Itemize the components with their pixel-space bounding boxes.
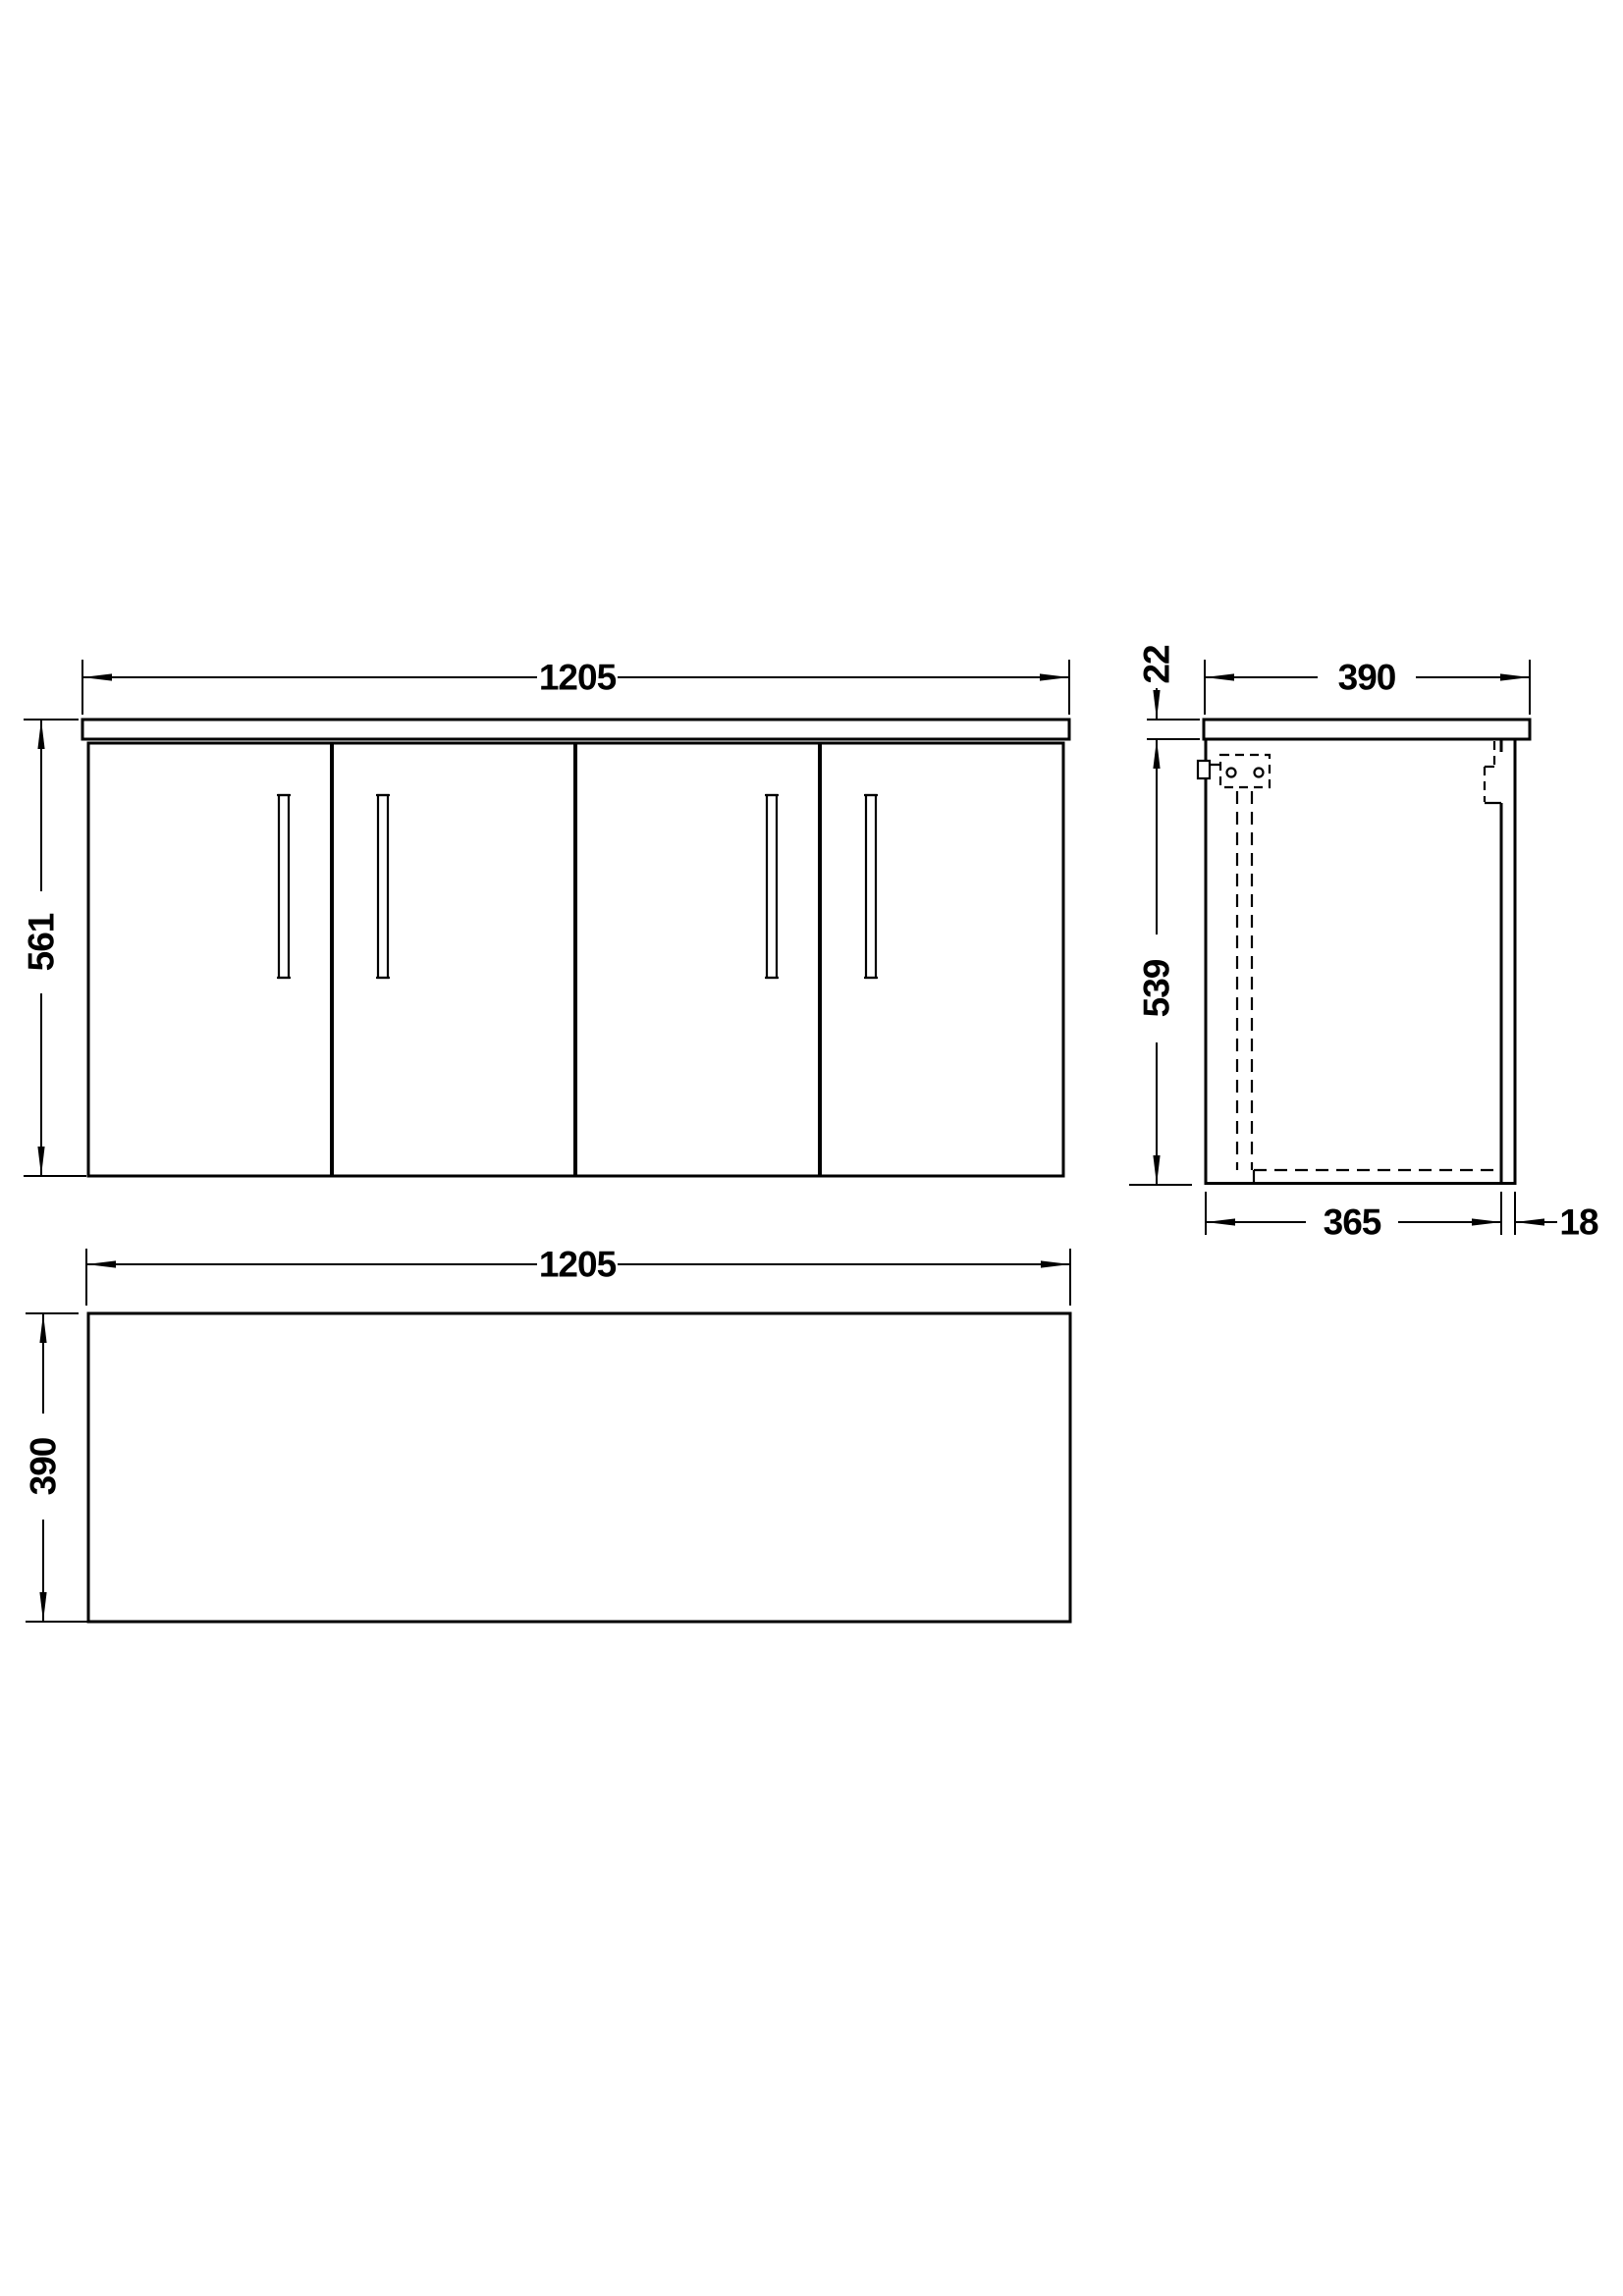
- dim-front-width-label: 1205: [539, 658, 617, 698]
- door-handle-4: [864, 795, 878, 978]
- door-handle-2: [376, 795, 390, 978]
- bracket-screw-hole-2: [1255, 769, 1264, 777]
- side-countertop: [1204, 720, 1530, 739]
- dim-internal-depth-label: 365: [1324, 1202, 1381, 1243]
- dim-side-height-label: 539: [1137, 959, 1177, 1017]
- bracket-screw-hole-1: [1227, 769, 1236, 777]
- vanity-unit-drawing: 1205 561: [0, 0, 1623, 2296]
- dim-front-height-label: 561: [22, 913, 62, 971]
- door-handle-3: [765, 795, 779, 978]
- bracket-hook: [1198, 761, 1210, 778]
- plan-view: [88, 1313, 1070, 1622]
- door-handle-1: [277, 795, 291, 978]
- front-countertop: [82, 720, 1069, 739]
- dim-back-panel-label: 18: [1559, 1202, 1598, 1243]
- front-elevation-view: [82, 720, 1069, 1176]
- dim-counter-thickness-label: 22: [1137, 645, 1177, 684]
- dim-side-depth-label: 390: [1338, 658, 1396, 698]
- technical-drawing-page: 1205 561: [0, 0, 1623, 2296]
- dim-plan-width-label: 1205: [539, 1245, 617, 1285]
- plan-countertop-outline: [88, 1313, 1070, 1622]
- dim-plan-depth-label: 390: [24, 1437, 64, 1495]
